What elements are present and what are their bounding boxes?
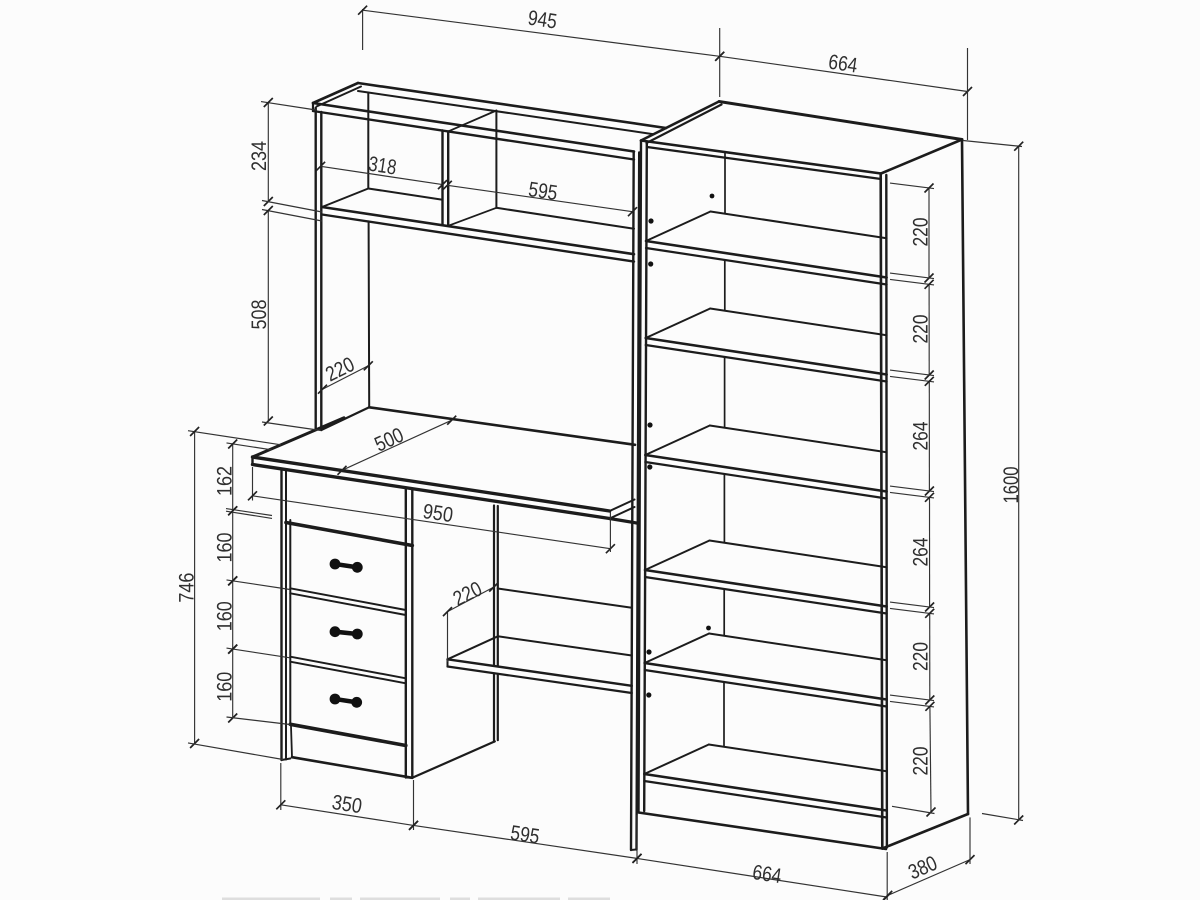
svg-text:220: 220 xyxy=(910,218,933,247)
svg-text:746: 746 xyxy=(176,573,199,603)
svg-text:160: 160 xyxy=(214,601,237,631)
svg-text:160: 160 xyxy=(214,533,237,563)
svg-text:160: 160 xyxy=(214,672,237,702)
svg-text:350: 350 xyxy=(330,791,363,818)
svg-text:664: 664 xyxy=(827,51,859,78)
svg-text:220: 220 xyxy=(910,315,933,344)
svg-text:595: 595 xyxy=(527,178,559,205)
svg-text:950: 950 xyxy=(421,500,454,527)
svg-text:1600: 1600 xyxy=(1000,467,1023,504)
svg-text:664: 664 xyxy=(751,861,783,888)
svg-text:318: 318 xyxy=(367,153,398,180)
svg-text:508: 508 xyxy=(248,300,271,330)
svg-text:595: 595 xyxy=(509,822,541,849)
svg-text:234: 234 xyxy=(248,141,271,171)
svg-text:945: 945 xyxy=(526,7,558,34)
svg-text:162: 162 xyxy=(214,466,237,496)
svg-text:220: 220 xyxy=(910,747,933,776)
svg-text:220: 220 xyxy=(910,642,933,671)
svg-text:264: 264 xyxy=(910,421,933,450)
svg-text:264: 264 xyxy=(910,537,933,566)
